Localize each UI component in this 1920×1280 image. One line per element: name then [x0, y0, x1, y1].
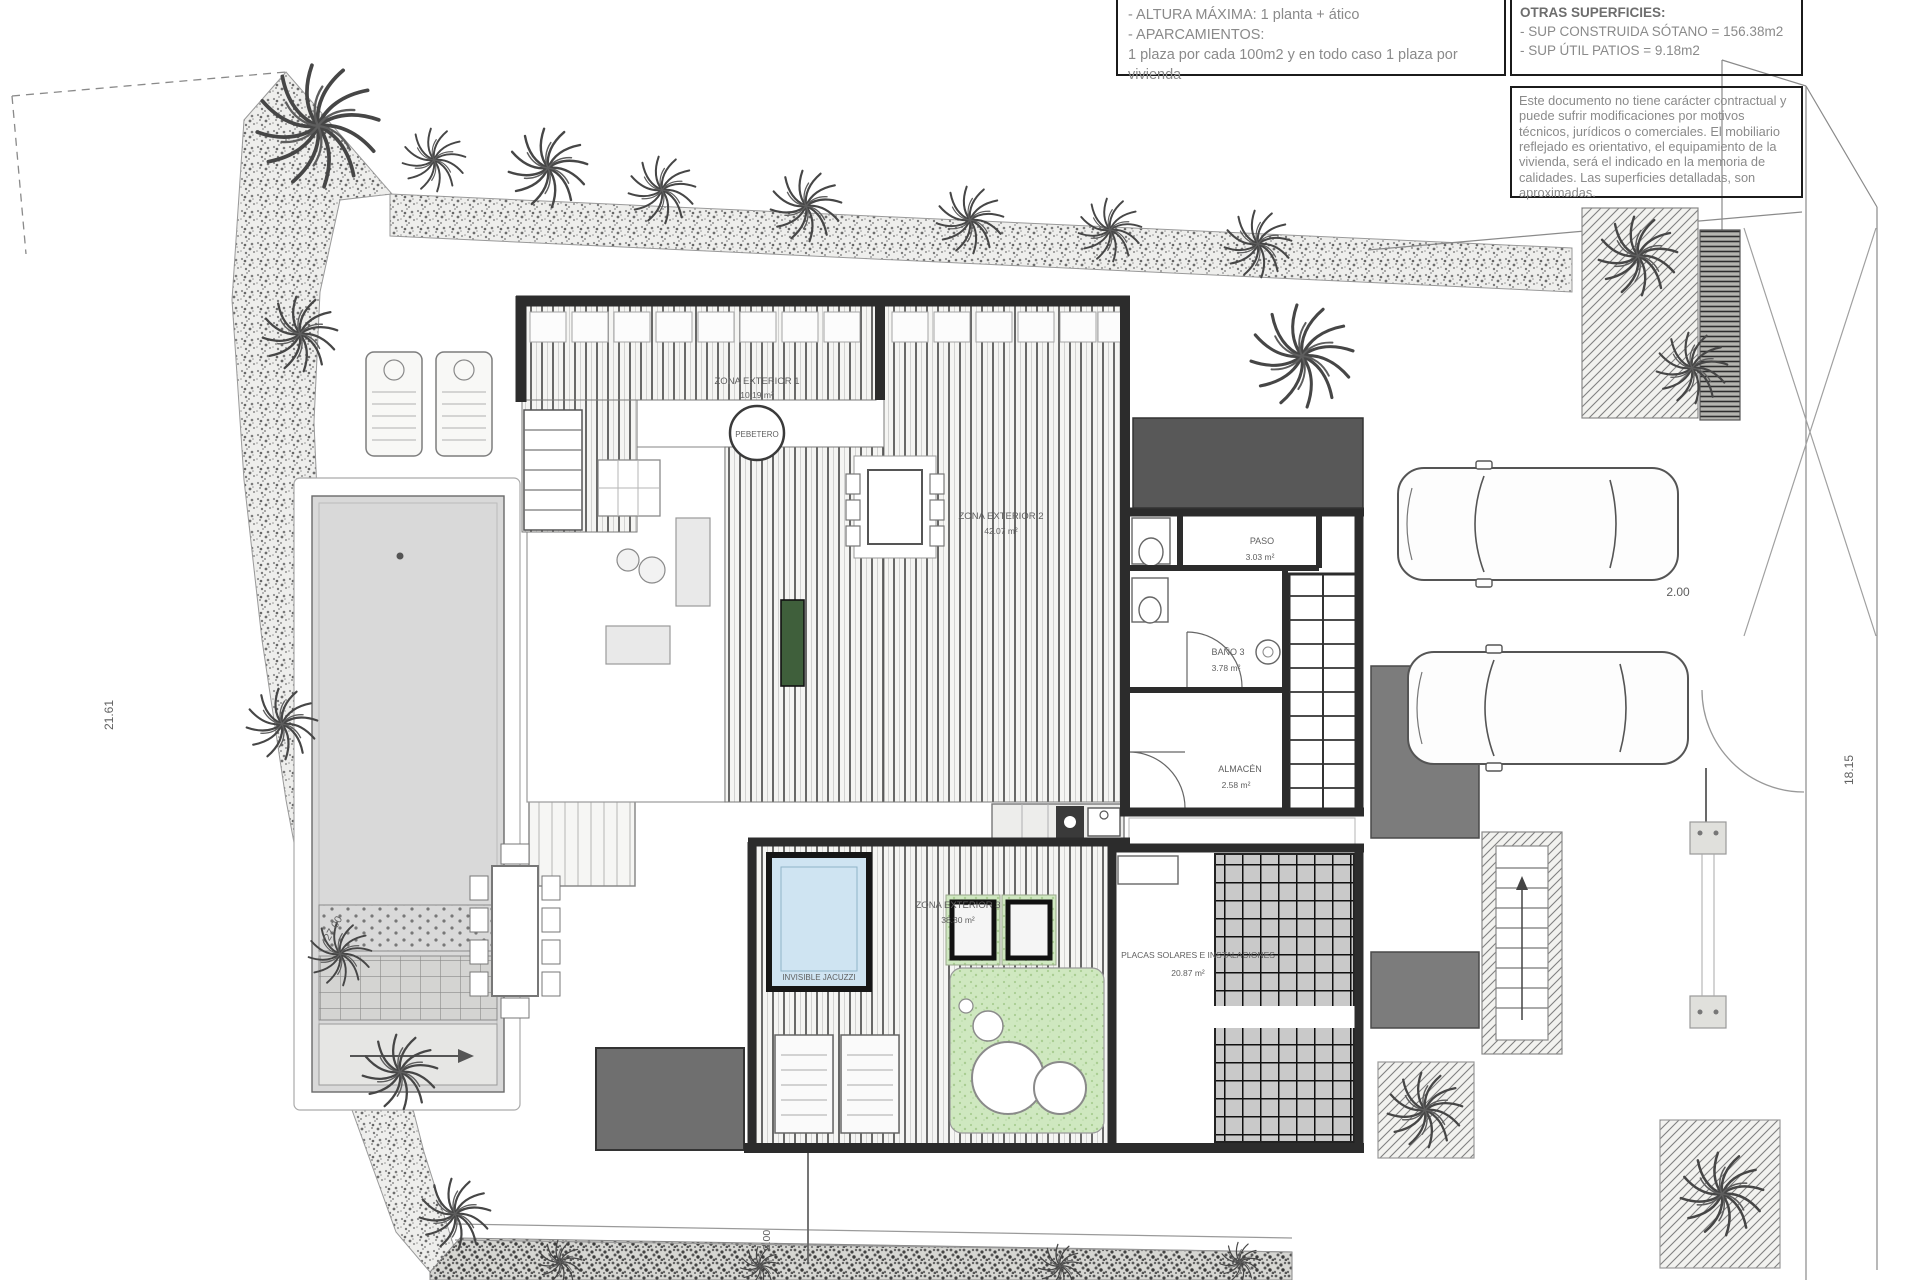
label-paso-name: PASO	[1250, 536, 1274, 546]
swimming-pool	[294, 478, 520, 1110]
kitchen-counter	[992, 804, 1124, 842]
building-rule-line: - ALTURA MÁXIMA: 1 planta + ático	[1128, 5, 1494, 25]
kitchen-sink	[1088, 808, 1120, 836]
label-placas-area: 20.87 m²	[1171, 968, 1205, 978]
solar-room	[1112, 850, 1356, 1146]
building-rules-box: - ALTURA MÁXIMA: 1 planta + ático - APAR…	[1116, 0, 1506, 76]
slatted-lounger	[529, 794, 635, 886]
equipment-box	[1118, 856, 1178, 884]
disclaimer-text: Este documento no tiene carácter contrac…	[1519, 93, 1786, 200]
deck-stair-element	[524, 410, 582, 530]
car-top	[1398, 461, 1678, 587]
label-almacen-area: 2.58 m²	[1222, 780, 1251, 790]
timber-deck-strip	[1700, 230, 1740, 420]
driveway-entry-arc	[1702, 690, 1804, 792]
rear-corridor	[1129, 818, 1355, 844]
palm-tree-icon	[509, 129, 587, 207]
entrance-gate	[1690, 768, 1726, 1028]
label-placas-name: PLACAS SOLARES E INSTALACIONES	[1121, 950, 1275, 960]
dim-bottom: 2.00	[761, 1230, 773, 1251]
dim-right: 18.15	[1842, 755, 1856, 785]
other-surfaces-line: - SUP CONSTRUIDA SÓTANO = 156.38m2	[1520, 23, 1793, 42]
label-bano-name: BAÑO 3	[1211, 647, 1244, 657]
label-jacuzzi: INVISIBLE JACUZZI	[782, 973, 855, 982]
driveway-splay-lines	[1744, 228, 1876, 636]
label-zona3-area: 38.30 m²	[941, 915, 975, 925]
sun-lounger	[436, 352, 492, 456]
other-surfaces-line: - SUP ÚTIL PATIOS = 9.18m2	[1520, 42, 1793, 61]
other-surfaces-title: OTRAS SUPERFICIES:	[1520, 4, 1793, 23]
sun-lounger	[366, 352, 422, 456]
planter-box-row	[530, 312, 1122, 342]
dim-left: 21.61	[102, 700, 116, 730]
label-zona1-area: 10.19 m²	[740, 390, 774, 400]
exterior-stair-planter	[1482, 832, 1562, 1054]
disclaimer-box: Este documento no tiene carácter contrac…	[1510, 86, 1803, 198]
solar-walkway-gap	[1213, 1006, 1356, 1028]
label-pebetero: PEBETERO	[735, 430, 779, 439]
lawn-stone	[1034, 1062, 1086, 1114]
label-zona1-name: ZONA EXTERIOR 1	[715, 376, 800, 387]
building-rule-line: - APARCAMIENTOS:	[1128, 25, 1494, 45]
lawn-stone	[959, 999, 973, 1013]
washbasin	[1256, 640, 1280, 664]
dim-garage: 2.00	[1666, 585, 1690, 599]
carport-pergola	[1133, 418, 1363, 508]
label-bano-area: 3.78 m²	[1212, 663, 1241, 673]
lawn-stone	[972, 1042, 1044, 1114]
staircase	[1289, 574, 1358, 810]
porch-slab-low	[1371, 952, 1479, 1028]
other-surfaces-box: OTRAS SUPERFICIES: - SUP CONSTRUIDA SÓTA…	[1510, 0, 1803, 76]
label-almacen-name: ALMACÉN	[1218, 764, 1262, 774]
label-zona2-name: ZONA EXTERIOR 2	[959, 511, 1044, 522]
palm-tree-icon	[403, 129, 466, 192]
label-zona2-area: 42.07 m²	[984, 526, 1018, 536]
car-bottom	[1408, 645, 1688, 771]
paso-toilet	[1132, 518, 1170, 566]
solar-panel-grid	[1215, 854, 1354, 1142]
palm-tree-icon	[1251, 305, 1353, 407]
building-rule-line: 1 plaza por cada 100m2 y en todo caso 1 …	[1128, 45, 1494, 85]
green-planter-strip	[781, 600, 804, 686]
site-plan-canvas: ZONA EXTERIOR 1 10.19 m² PEBETERO ZONA E…	[0, 0, 1920, 1280]
deck-dining-table	[846, 456, 944, 558]
lawn-stone	[973, 1011, 1003, 1041]
storage-block	[596, 1048, 744, 1150]
lawn-area	[950, 968, 1104, 1133]
jacuzzi	[769, 855, 869, 989]
label-zona3-name: ZONA EXTERIOR 3	[916, 900, 1001, 911]
pool-drain	[397, 553, 404, 560]
label-paso-area: 3.03 m²	[1246, 552, 1275, 562]
garden-band-top	[390, 194, 1572, 292]
